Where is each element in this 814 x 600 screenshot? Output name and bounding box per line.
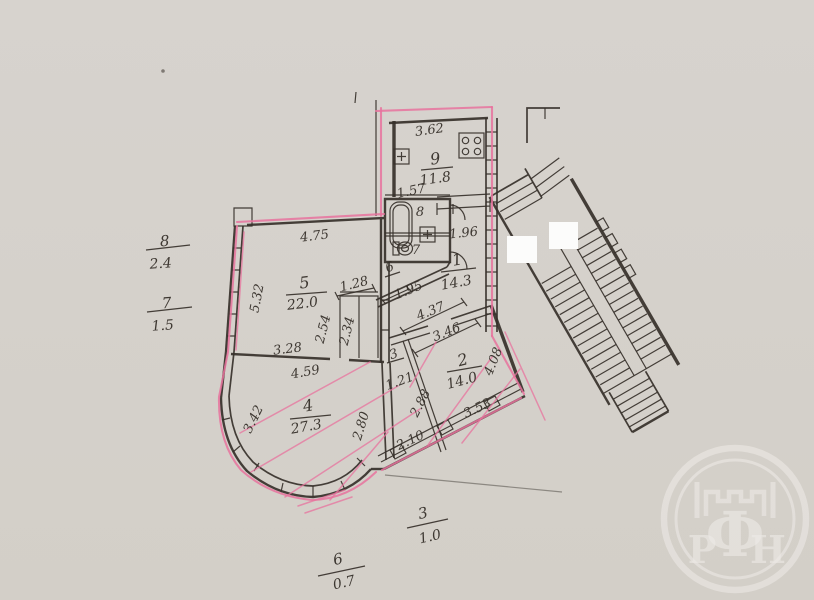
scanned-floor-plan-page: 3.62 9 11.8 1.57 8 7 1.96 1 14.3 6 1.95 … <box>0 0 814 600</box>
redaction-patch-right <box>549 222 578 249</box>
watermark-letter-right: Н <box>750 527 786 572</box>
room7-number: 7 <box>412 243 421 258</box>
room8-number: 8 <box>416 205 424 220</box>
paper-background <box>0 0 814 600</box>
margin-left-lower-num: 7 <box>161 294 172 313</box>
margin-left-lower-value: 1.5 <box>151 317 174 335</box>
dim-kitchen-opening: 1.96 <box>448 225 478 243</box>
margin-left-upper-value: 2.4 <box>148 255 172 273</box>
redaction-patch-left <box>507 236 537 263</box>
margin-left-upper-num: 8 <box>159 232 170 251</box>
floor-plan-svg: 3.62 9 11.8 1.57 8 7 1.96 1 14.3 6 1.95 … <box>0 0 814 600</box>
